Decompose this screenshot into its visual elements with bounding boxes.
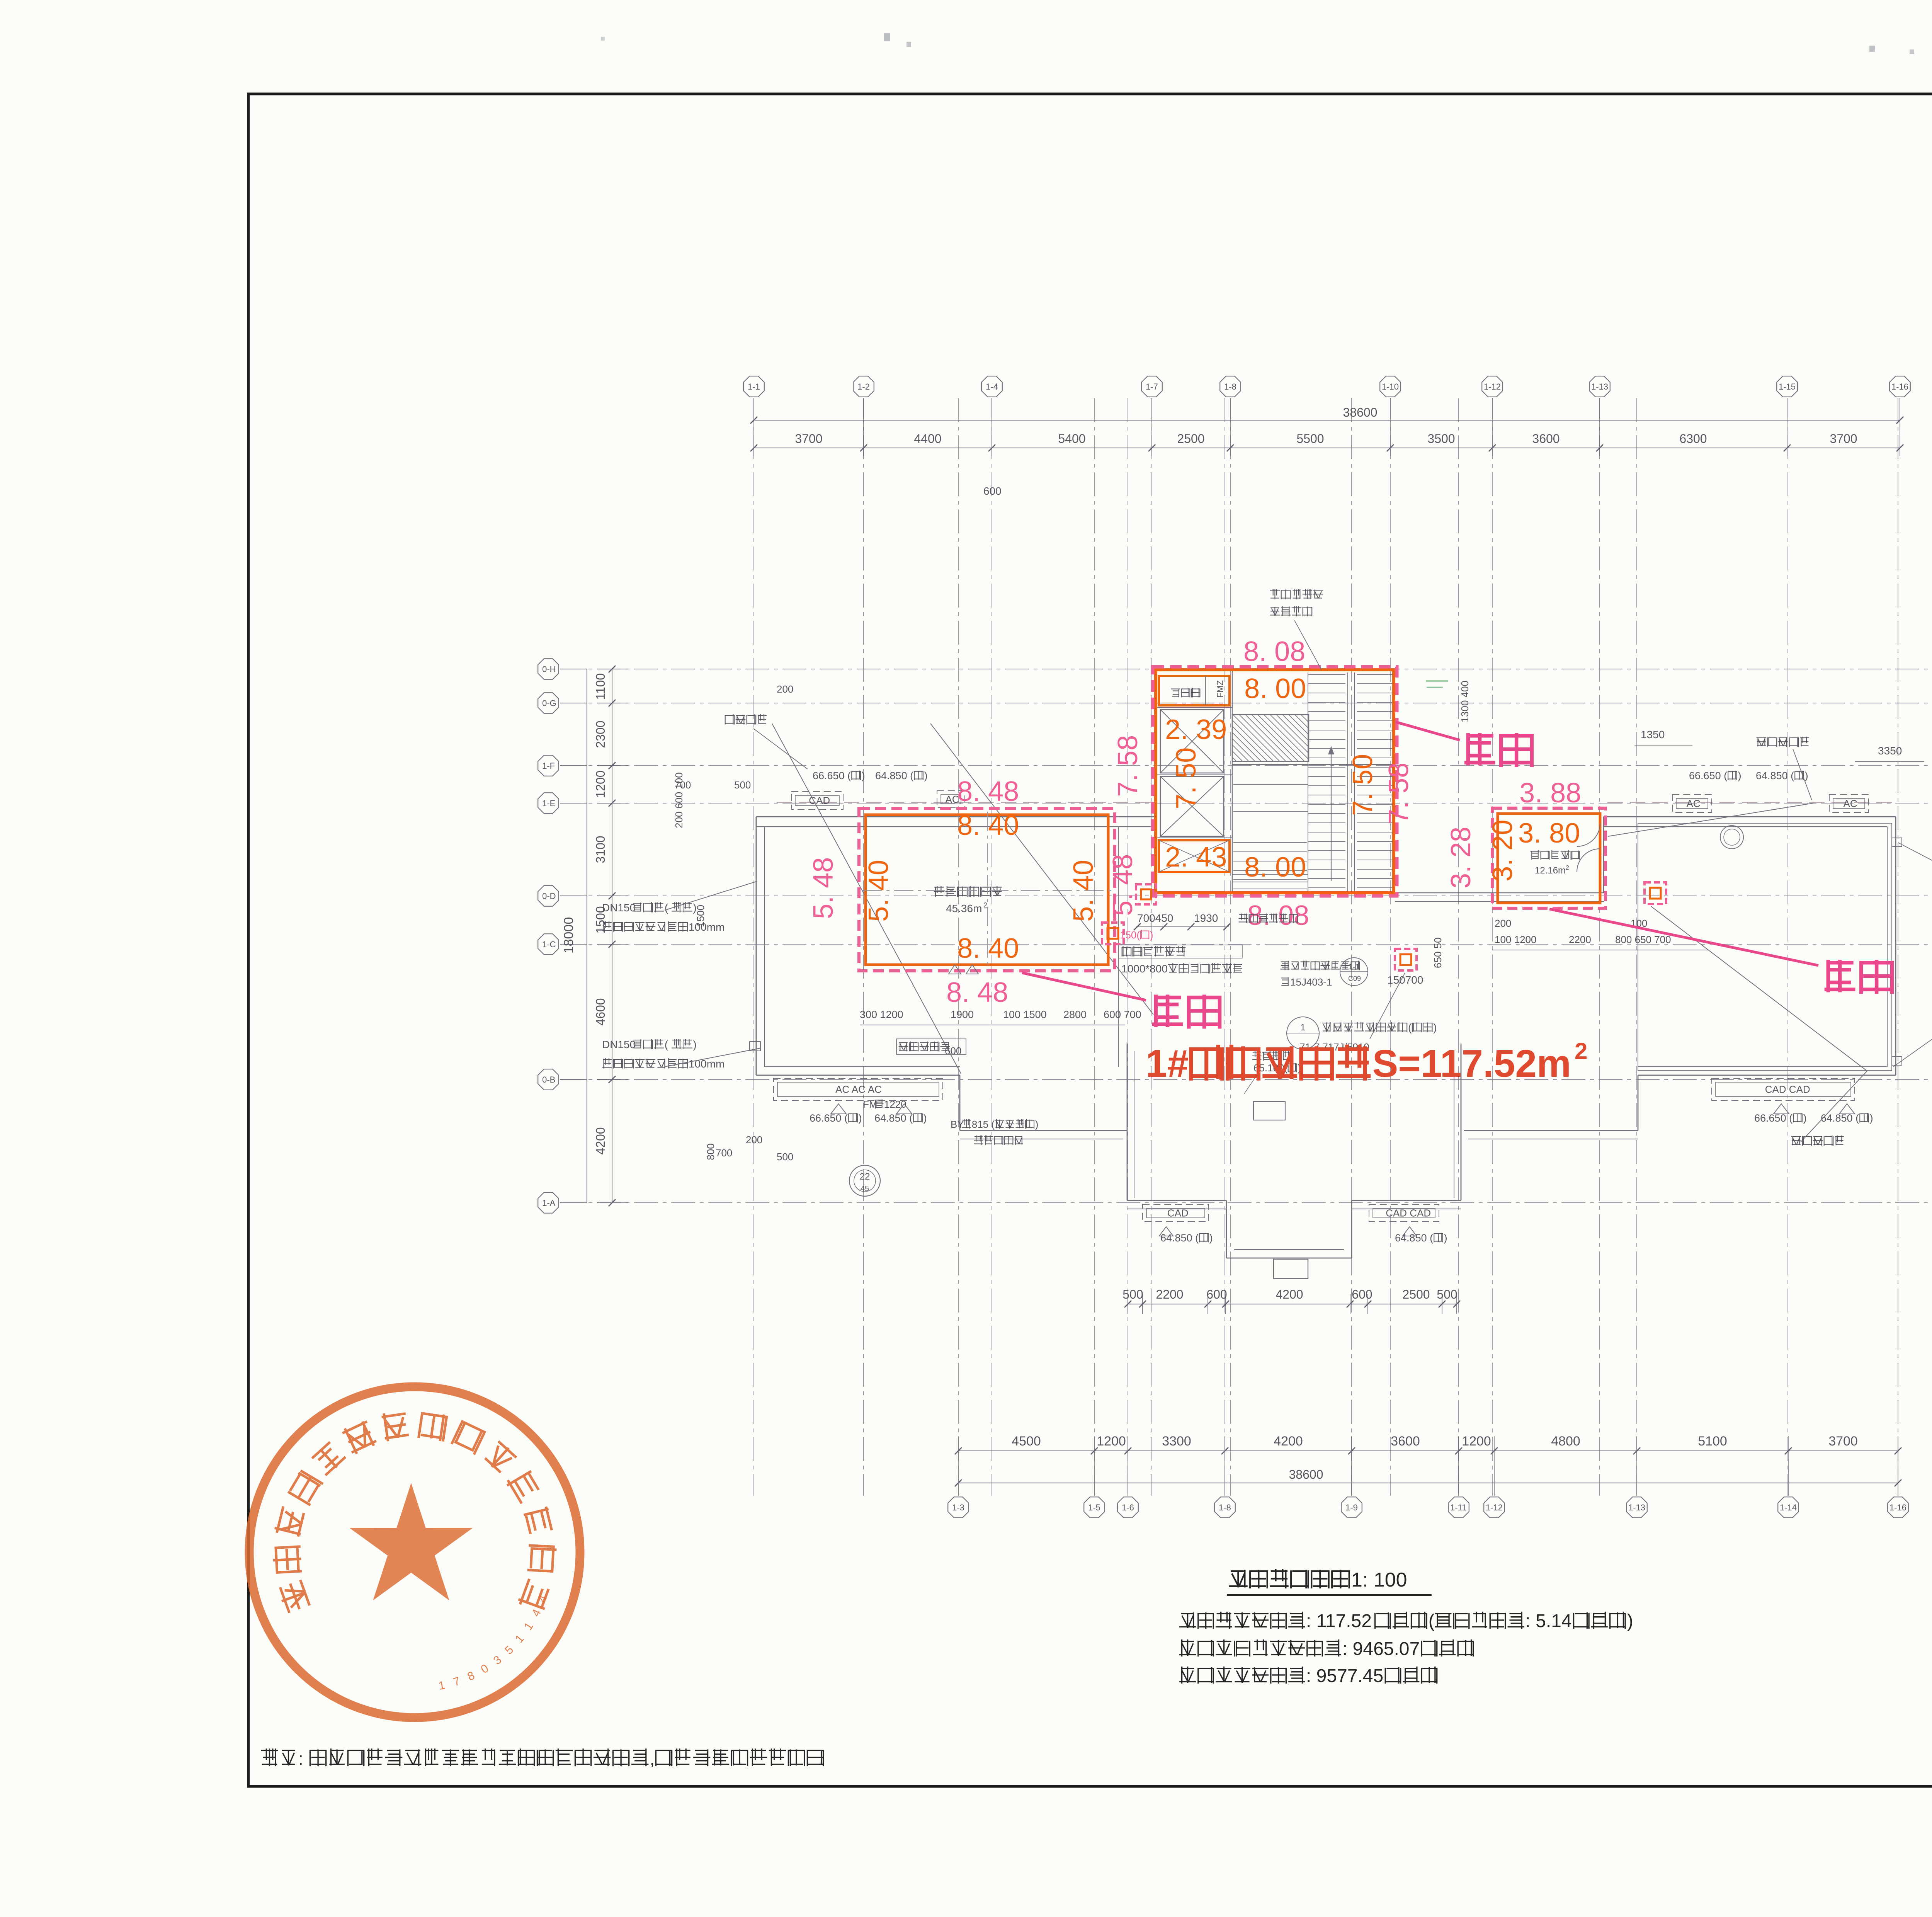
- svg-text:1-A: 1-A: [542, 1198, 556, 1208]
- svg-text:): ): [862, 770, 865, 781]
- svg-text:4500: 4500: [1012, 1434, 1041, 1449]
- svg-text:CAD CAD: CAD CAD: [1765, 1084, 1810, 1095]
- svg-text::: :: [298, 1748, 303, 1769]
- svg-text:1-11: 1-11: [1450, 1503, 1466, 1512]
- svg-text:800 650 700: 800 650 700: [1615, 934, 1671, 945]
- svg-text:FMZ: FMZ: [1215, 680, 1225, 698]
- svg-text:0-D: 0-D: [542, 891, 556, 901]
- svg-text:): ): [1444, 1232, 1447, 1244]
- svg-text:): ): [859, 1112, 862, 1124]
- svg-text:): ): [1035, 1119, 1039, 1130]
- svg-text:2. 43: 2. 43: [1165, 842, 1227, 873]
- svg-text:12.16m: 12.16m: [1535, 865, 1566, 876]
- svg-text:66.650 (: 66.650 (: [1754, 1112, 1793, 1124]
- svg-text:BY: BY: [951, 1119, 964, 1130]
- svg-text:815 (: 815 (: [972, 1119, 995, 1130]
- svg-text:: 9577.45: : 9577.45: [1306, 1666, 1383, 1686]
- svg-text:64.850 (: 64.850 (: [875, 770, 913, 781]
- svg-text:1-10: 1-10: [1382, 382, 1399, 392]
- svg-text:8. 00: 8. 00: [1244, 852, 1306, 883]
- svg-text:100 1200: 100 1200: [1495, 934, 1536, 945]
- svg-text:1-13: 1-13: [1628, 1503, 1645, 1512]
- svg-text:1#: 1#: [1146, 1042, 1189, 1085]
- svg-text:600: 600: [1206, 1287, 1227, 1301]
- svg-text:1-C: 1-C: [542, 940, 556, 949]
- svg-text:700: 700: [674, 779, 691, 791]
- svg-text:AC AC AC: AC AC AC: [835, 1084, 882, 1095]
- svg-text:3700: 3700: [1830, 432, 1857, 446]
- svg-text:2: 2: [983, 901, 987, 909]
- svg-text:1-13: 1-13: [1591, 382, 1608, 392]
- svg-text:1-12: 1-12: [1484, 382, 1501, 392]
- svg-text:600: 600: [1352, 1287, 1372, 1301]
- svg-text:2200: 2200: [1156, 1287, 1183, 1301]
- svg-text:7. 58: 7. 58: [1112, 735, 1143, 797]
- svg-text:3300: 3300: [1162, 1434, 1191, 1449]
- svg-text:4200: 4200: [1274, 1434, 1303, 1449]
- svg-text:2300: 2300: [594, 720, 607, 748]
- svg-text:2200: 2200: [1569, 934, 1591, 945]
- svg-text:4200: 4200: [1276, 1287, 1303, 1301]
- svg-text:5. 40: 5. 40: [1068, 860, 1099, 922]
- svg-text:1100: 1100: [594, 673, 607, 700]
- svg-text:650 50: 650 50: [1432, 937, 1444, 968]
- svg-text:1-15: 1-15: [1779, 382, 1796, 392]
- svg-text:3. 28: 3. 28: [1446, 827, 1476, 889]
- svg-text:CAD: CAD: [1167, 1207, 1189, 1219]
- svg-text:): ): [1150, 929, 1153, 941]
- svg-text:3600: 3600: [1391, 1434, 1420, 1449]
- svg-text:1-9: 1-9: [1345, 1503, 1358, 1512]
- svg-text:150(: 150(: [1120, 929, 1140, 941]
- svg-text:6300: 6300: [1679, 432, 1707, 446]
- svg-text:): ): [923, 1112, 927, 1124]
- svg-text:22: 22: [860, 1171, 870, 1182]
- svg-text:2500: 2500: [1402, 1287, 1430, 1301]
- svg-text:3600: 3600: [1532, 432, 1560, 446]
- svg-text:3700: 3700: [1828, 1434, 1858, 1449]
- svg-text:8. 00: 8. 00: [1244, 673, 1306, 704]
- svg-text:1-F: 1-F: [542, 761, 555, 771]
- svg-text:1350: 1350: [1641, 729, 1665, 741]
- svg-text:1-4: 1-4: [986, 382, 998, 392]
- svg-text:7. 58: 7. 58: [1383, 763, 1414, 824]
- svg-text:100 1500: 100 1500: [1003, 1009, 1047, 1020]
- svg-text:3350: 3350: [1878, 745, 1902, 757]
- svg-text:500: 500: [734, 779, 751, 791]
- svg-text:: 5.14: : 5.14: [1526, 1611, 1572, 1631]
- svg-text:500: 500: [1122, 1287, 1143, 1301]
- svg-text:150700: 150700: [1387, 974, 1423, 986]
- svg-text:3100: 3100: [594, 836, 607, 863]
- svg-text:5500: 5500: [1296, 432, 1324, 446]
- svg-text:S=117.52m: S=117.52m: [1372, 1042, 1571, 1085]
- svg-text:1200: 1200: [1462, 1434, 1491, 1449]
- svg-text:100mm: 100mm: [689, 1058, 724, 1070]
- svg-text:3. 20: 3. 20: [1487, 820, 1518, 882]
- svg-text:4800: 4800: [1551, 1434, 1580, 1449]
- svg-text:): ): [1803, 1112, 1807, 1124]
- svg-text:1-3: 1-3: [952, 1503, 964, 1512]
- svg-text:64.850 (: 64.850 (: [1756, 770, 1794, 781]
- svg-text:66.650 (: 66.650 (: [810, 1112, 848, 1124]
- svg-text:800: 800: [705, 1143, 716, 1160]
- svg-text:3700: 3700: [795, 432, 822, 446]
- svg-text:1-1: 1-1: [748, 382, 760, 392]
- svg-text:2: 2: [1566, 865, 1569, 871]
- svg-text:15J403-1: 15J403-1: [1290, 976, 1332, 988]
- svg-text:45.36m: 45.36m: [946, 902, 982, 914]
- svg-text:AC: AC: [1687, 798, 1701, 809]
- svg-text:1000*800: 1000*800: [1121, 963, 1168, 975]
- svg-text:45: 45: [861, 1185, 869, 1193]
- svg-text:): ): [1209, 1232, 1213, 1244]
- svg-text:CAD: CAD: [809, 795, 830, 806]
- svg-text:7. 50: 7. 50: [1347, 754, 1378, 816]
- svg-text:8. 48: 8. 48: [957, 776, 1019, 807]
- svg-text:1200: 1200: [594, 770, 607, 798]
- svg-text:700: 700: [716, 1147, 732, 1159]
- svg-text:2. 39: 2. 39: [1165, 714, 1227, 745]
- svg-text:1: 100: 1: 100: [1351, 1569, 1407, 1591]
- svg-text:(: (: [1429, 1611, 1435, 1631]
- svg-text:1500: 1500: [695, 905, 706, 927]
- svg-text:1-E: 1-E: [542, 798, 555, 808]
- svg-text:600: 600: [945, 1045, 961, 1057]
- svg-text:100mm: 100mm: [689, 921, 724, 933]
- svg-text:1200: 1200: [1097, 1434, 1126, 1449]
- svg-text:0-B: 0-B: [542, 1075, 555, 1084]
- svg-text:(: (: [1408, 1021, 1412, 1033]
- svg-text:5400: 5400: [1058, 432, 1085, 446]
- svg-text:3. 80: 3. 80: [1518, 818, 1580, 849]
- svg-text:5. 40: 5. 40: [863, 860, 894, 922]
- svg-text:64.850 (: 64.850 (: [874, 1112, 913, 1124]
- svg-text:CAD CAD: CAD CAD: [1386, 1207, 1431, 1219]
- svg-text:8. 08: 8. 08: [1243, 636, 1305, 667]
- svg-text:C09: C09: [1348, 975, 1361, 982]
- svg-text:500: 500: [777, 1151, 793, 1163]
- svg-text:7. 50: 7. 50: [1171, 747, 1202, 809]
- svg-text:1-5: 1-5: [1088, 1503, 1100, 1512]
- svg-text:700450: 700450: [1137, 912, 1173, 924]
- svg-text:1300 400: 1300 400: [1459, 681, 1471, 722]
- svg-text:0-H: 0-H: [542, 664, 556, 674]
- svg-text:): ): [924, 770, 928, 781]
- svg-text:): ): [1433, 1021, 1437, 1033]
- svg-text:200: 200: [746, 1134, 762, 1146]
- svg-text:DN150: DN150: [602, 902, 636, 914]
- svg-text:5100: 5100: [1698, 1434, 1727, 1449]
- svg-text:1-8: 1-8: [1224, 382, 1236, 392]
- svg-text:200: 200: [777, 683, 793, 695]
- svg-text:200: 200: [1495, 918, 1511, 929]
- svg-text:1-2: 1-2: [857, 382, 870, 392]
- svg-text:8. 40: 8. 40: [957, 810, 1019, 841]
- svg-text:1900: 1900: [951, 1009, 974, 1020]
- svg-text:): ): [1870, 1112, 1873, 1124]
- svg-text:AC: AC: [1844, 798, 1857, 809]
- svg-text:2500: 2500: [1177, 432, 1204, 446]
- svg-text:1930: 1930: [1194, 912, 1218, 924]
- svg-text:1-8: 1-8: [1219, 1503, 1231, 1512]
- svg-text:500: 500: [1437, 1287, 1457, 1301]
- svg-text:(: (: [665, 902, 668, 914]
- svg-text:1-7: 1-7: [1146, 382, 1158, 392]
- svg-text:1-12: 1-12: [1486, 1503, 1503, 1512]
- svg-text:5. 48: 5. 48: [808, 857, 839, 919]
- svg-text:0-G: 0-G: [542, 698, 556, 708]
- svg-text:3. 88: 3. 88: [1519, 778, 1581, 809]
- svg-text:(: (: [665, 1039, 668, 1050]
- svg-text:8. 08: 8. 08: [1247, 900, 1309, 931]
- svg-text:: 9465.07: : 9465.07: [1342, 1639, 1420, 1659]
- svg-text:66.650 (: 66.650 (: [1689, 770, 1727, 781]
- svg-text:1: 1: [1300, 1022, 1305, 1033]
- svg-text:5. 48: 5. 48: [1107, 854, 1138, 916]
- svg-text:64.850 (: 64.850 (: [1160, 1232, 1199, 1244]
- svg-text:1-16: 1-16: [1889, 1503, 1906, 1512]
- svg-text:38600: 38600: [1289, 1468, 1323, 1481]
- svg-text:4400: 4400: [914, 432, 941, 446]
- svg-text:3500: 3500: [1427, 432, 1455, 446]
- svg-text:: 117.52: : 117.52: [1306, 1611, 1372, 1631]
- svg-text:300 1200: 300 1200: [860, 1009, 903, 1020]
- svg-text:1-1: 1-1: [1349, 963, 1360, 971]
- svg-text:1-16: 1-16: [1891, 382, 1908, 392]
- svg-text:1220: 1220: [884, 1098, 906, 1110]
- svg-text:1-14: 1-14: [1780, 1503, 1797, 1512]
- svg-text:): ): [1805, 770, 1808, 781]
- svg-text:600 700: 600 700: [1104, 1009, 1141, 1020]
- svg-text:): ): [1627, 1611, 1633, 1631]
- svg-text:): ): [693, 1039, 697, 1050]
- svg-text:2800: 2800: [1063, 1009, 1087, 1020]
- svg-text:18000: 18000: [561, 917, 576, 954]
- svg-text:38600: 38600: [1343, 405, 1378, 419]
- svg-text:,: ,: [650, 1748, 655, 1769]
- svg-text:): ): [1738, 770, 1742, 781]
- svg-text:66.650 (: 66.650 (: [813, 770, 851, 781]
- svg-text:8. 48: 8. 48: [946, 977, 1008, 1008]
- svg-text:2: 2: [1575, 1038, 1587, 1064]
- svg-text:8. 40: 8. 40: [957, 933, 1019, 964]
- svg-text:4600: 4600: [594, 998, 607, 1025]
- svg-text:1-6: 1-6: [1122, 1503, 1134, 1512]
- svg-text:64.850 (: 64.850 (: [1395, 1232, 1433, 1244]
- svg-text:4200: 4200: [594, 1127, 607, 1154]
- svg-text:600: 600: [983, 485, 1002, 497]
- svg-text:DN150: DN150: [602, 1039, 636, 1050]
